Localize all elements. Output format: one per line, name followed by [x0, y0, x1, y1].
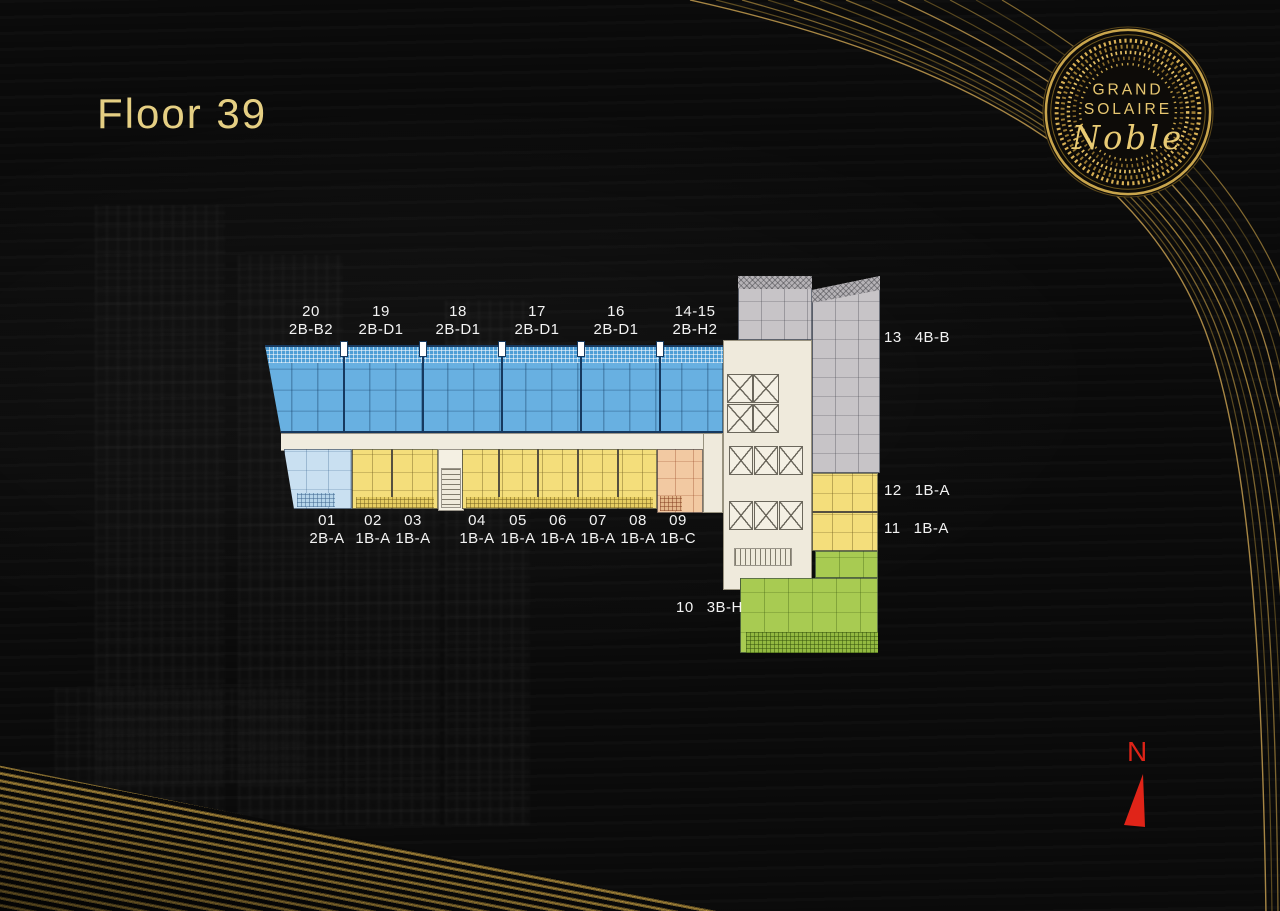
unit-number: 13 [884, 329, 902, 346]
unit-10-upper [815, 551, 878, 578]
unit-label-12: 12 1B-A [884, 482, 950, 499]
unit-13-balcony-hatch [738, 276, 812, 289]
unit-number: 06 [540, 512, 575, 530]
balcony-hatch-top [265, 345, 723, 363]
unit-13-wing [812, 276, 880, 473]
unit-label-13: 13 4B-B [884, 329, 950, 346]
unit-type: 1B-A [395, 530, 430, 548]
elevator-shaft [729, 446, 753, 475]
unit-label-14-15: 14-15 2B-H2 [672, 303, 717, 338]
unit-label-19: 19 2B-D1 [358, 303, 403, 338]
staircase [441, 468, 461, 508]
unit-type: 1B-A [459, 530, 494, 548]
unit-label-03: 03 1B-A [395, 512, 430, 547]
unit-type: 1B-A [355, 530, 390, 548]
unit-label-06: 06 1B-A [540, 512, 575, 547]
unit-type: 2B-B2 [289, 321, 333, 339]
unit-number: 04 [459, 512, 494, 530]
unit-label-11: 11 1B-A [884, 520, 949, 537]
grand-solaire-noble-logo: GRAND SOLAIRE Noble [1040, 24, 1216, 200]
unit-number: 17 [514, 303, 559, 321]
unit-label-18: 18 2B-D1 [435, 303, 480, 338]
unit-label-04: 04 1B-A [459, 512, 494, 547]
unit-divider-wall [659, 347, 661, 432]
unit-type: 2B-A [309, 530, 344, 548]
unit-number: 12 [884, 482, 902, 499]
unit-number: 02 [355, 512, 390, 530]
unit-number: 11 [884, 520, 901, 537]
balcony-hatch-bottom [356, 497, 434, 508]
unit-12 [812, 473, 878, 512]
unit-label-17: 17 2B-D1 [514, 303, 559, 338]
unit-number: 05 [500, 512, 535, 530]
unit-10-balcony-hatch [746, 632, 878, 653]
unit-number: 09 [660, 512, 696, 530]
unit-type: 1B-C [660, 530, 696, 548]
unit-divider-wall [501, 347, 503, 432]
unit-type: 1B-A [580, 530, 615, 548]
unit-type: 1B-A [915, 482, 950, 499]
unit-type: 2B-H2 [672, 321, 717, 339]
unit-label-01: 01 2B-A [309, 512, 344, 547]
unit-label-08: 08 1B-A [620, 512, 655, 547]
unit-type: 2B-D1 [514, 321, 559, 339]
unit-number: 20 [289, 303, 333, 321]
elevator-shaft [729, 501, 753, 530]
staircase [734, 548, 792, 566]
unit-label-02: 02 1B-A [355, 512, 390, 547]
balcony-partition [498, 341, 506, 357]
unit-01-balcony-hatch [297, 493, 335, 507]
unit-number: 14-15 [672, 303, 717, 321]
balcony-partition [340, 341, 348, 357]
north-label: N [1127, 736, 1148, 768]
balcony-partition [577, 341, 585, 357]
unit-number: 16 [593, 303, 638, 321]
page-title: Floor 39 [97, 90, 267, 138]
unit-divider-wall [422, 347, 424, 432]
balcony-partition [419, 341, 427, 357]
logo-text-noble: Noble [1071, 119, 1184, 157]
logo-text-solaire: SOLAIRE [1084, 101, 1172, 118]
logo-text-grand: GRAND [1092, 81, 1163, 98]
elevator-shaft [727, 374, 753, 403]
elevator-shaft [779, 446, 803, 475]
unit-divider-wall [580, 347, 582, 432]
unit-11 [812, 512, 878, 551]
balcony-partition [656, 341, 664, 357]
unit-type: 1B-A [540, 530, 575, 548]
unit-type: 1B-A [500, 530, 535, 548]
unit-label-10: 10 3B-H [676, 599, 743, 616]
unit-number: 07 [580, 512, 615, 530]
brochure-page: Floor 39 GRAND SOLAIRE Noble [0, 0, 1280, 911]
elevator-shaft [754, 501, 778, 530]
core-landing [703, 433, 723, 513]
unit-label-07: 07 1B-A [580, 512, 615, 547]
elevator-shaft [753, 374, 779, 403]
unit-type: 2B-D1 [593, 321, 638, 339]
elevator-shaft [727, 404, 753, 433]
unit-number: 08 [620, 512, 655, 530]
unit-type: 1B-A [620, 530, 655, 548]
north-arrow-icon [1116, 770, 1152, 830]
unit-label-20: 20 2B-B2 [289, 303, 333, 338]
unit-number: 18 [435, 303, 480, 321]
unit-type: 2B-D1 [435, 321, 480, 339]
unit-label-09: 09 1B-C [660, 512, 696, 547]
unit-number: 19 [358, 303, 403, 321]
unit-label-05: 05 1B-A [500, 512, 535, 547]
unit-09-balcony-hatch [660, 496, 682, 511]
unit-type: 2B-D1 [358, 321, 403, 339]
elevator-shaft [753, 404, 779, 433]
elevator-shaft [754, 446, 778, 475]
unit-type: 4B-B [915, 329, 950, 346]
unit-type: 1B-A [914, 520, 949, 537]
balcony-hatch-bottom [466, 497, 653, 508]
unit-label-16: 16 2B-D1 [593, 303, 638, 338]
wall-line [265, 345, 723, 347]
unit-type: 3B-H [707, 599, 743, 616]
unit-divider-wall [343, 347, 345, 432]
unit-number: 10 [676, 599, 694, 616]
unit-divider-wall [812, 511, 878, 513]
elevator-shaft [779, 501, 803, 530]
unit-number: 03 [395, 512, 430, 530]
unit-number: 01 [309, 512, 344, 530]
